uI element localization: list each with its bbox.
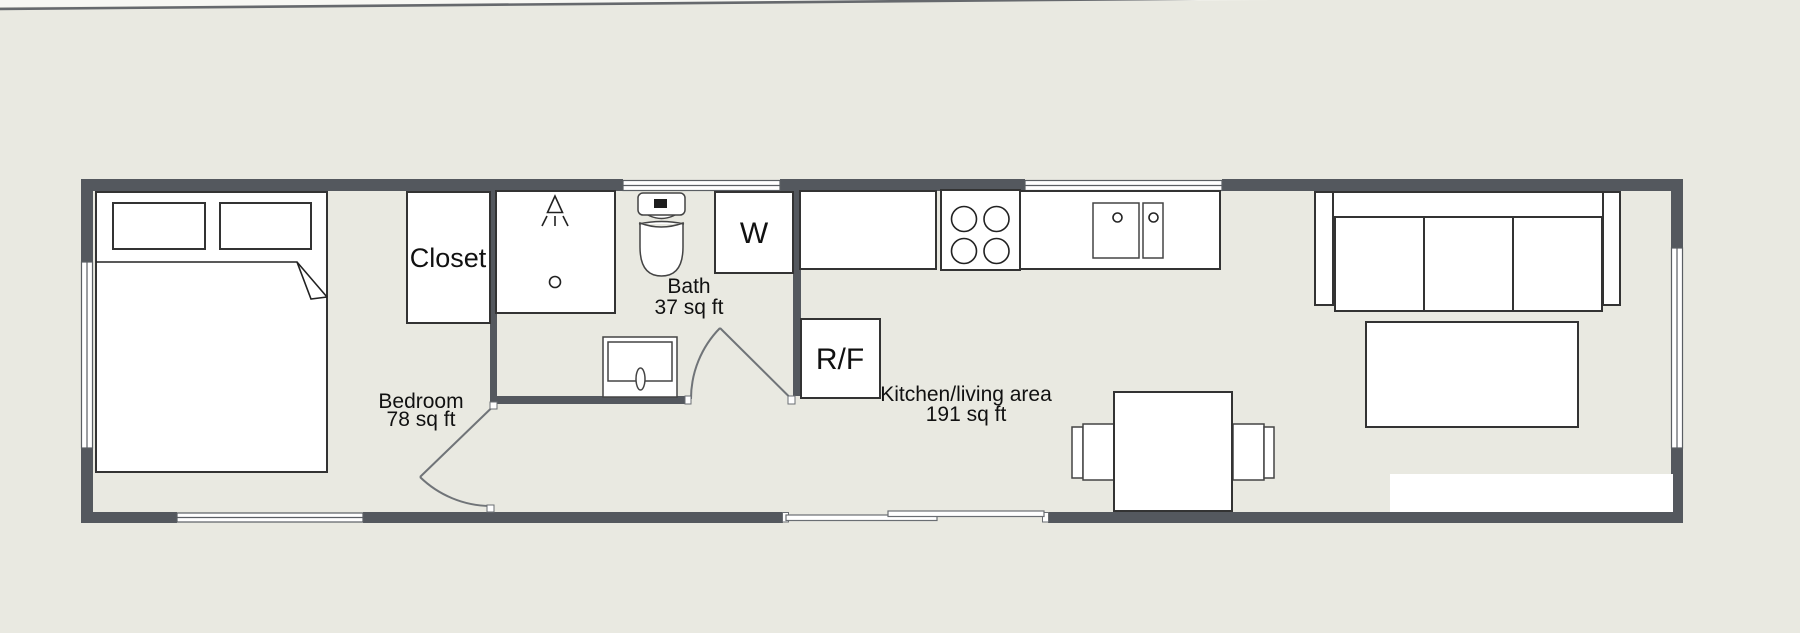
bedroom-door-jamb-bottom bbox=[487, 505, 494, 512]
shower-stall bbox=[496, 191, 615, 313]
sofa-armrest-left bbox=[1315, 192, 1333, 305]
toilet-bowl bbox=[640, 223, 683, 276]
kitchen-living-area-label: 191 sq ft bbox=[926, 403, 1007, 426]
toilet bbox=[638, 193, 685, 276]
sofa bbox=[1315, 192, 1620, 311]
bed-pillow-left bbox=[113, 203, 205, 249]
chair-right-back bbox=[1264, 427, 1274, 478]
vanity-faucet-handle bbox=[636, 368, 645, 390]
wall-bottom-middle-segment bbox=[363, 512, 783, 523]
floor-mat bbox=[1390, 474, 1673, 512]
wall-top-left-segment bbox=[83, 179, 623, 191]
bathroom-door-jamb-left bbox=[685, 396, 691, 404]
refrigerator-label: R/F bbox=[816, 343, 864, 376]
washer-label: W bbox=[740, 217, 769, 250]
living-right-window bbox=[1672, 248, 1683, 448]
wall-bottom-left-segment bbox=[83, 512, 177, 523]
bed bbox=[96, 192, 327, 472]
wall-right-upper-segment bbox=[1671, 179, 1683, 248]
sofa-armrest-right bbox=[1603, 192, 1620, 305]
bed-pillow-right bbox=[220, 203, 311, 249]
stove bbox=[941, 190, 1020, 270]
bedroom-bottom-window bbox=[177, 513, 363, 522]
bedroom-door-jamb-top bbox=[490, 402, 497, 409]
chair-left-back bbox=[1072, 427, 1083, 478]
wall-top-right-segment bbox=[1222, 179, 1683, 191]
sofa-back bbox=[1333, 192, 1603, 217]
dining-table bbox=[1114, 392, 1232, 511]
closet-label: Closet bbox=[410, 243, 487, 273]
wall-left-upper-segment bbox=[81, 179, 93, 262]
kitchen-sink-counter bbox=[1020, 191, 1220, 269]
bath-area-label: 37 sq ft bbox=[655, 296, 724, 319]
sofa-seat bbox=[1335, 217, 1602, 311]
chair-left-seat bbox=[1083, 424, 1114, 480]
wall-bottom-right-segment bbox=[1048, 512, 1683, 523]
dining-chair-left bbox=[1072, 424, 1114, 480]
sink-basin-small bbox=[1143, 203, 1163, 258]
kitchen-top-window bbox=[1025, 181, 1222, 191]
bathroom-vanity-sink bbox=[603, 337, 677, 397]
coffee-table bbox=[1366, 322, 1578, 427]
sliding-door-panel-right bbox=[888, 511, 1044, 517]
kitchen-counter-left bbox=[800, 191, 936, 269]
shower bbox=[496, 191, 615, 313]
chair-right-seat bbox=[1233, 424, 1264, 480]
bath-name-label: Bath bbox=[667, 275, 710, 298]
dining-chair-right bbox=[1233, 424, 1274, 480]
floor-plan: Closet W R/F Bedroom 78 sq ft Bath 37 sq… bbox=[0, 0, 1800, 633]
bedroom-area-label: 78 sq ft bbox=[387, 408, 456, 431]
wall-left-lower-segment bbox=[81, 448, 93, 523]
sink-basin-large bbox=[1093, 203, 1139, 258]
bathroom-door-jamb-right bbox=[788, 396, 795, 404]
floor-plan-canvas: Closet W R/F Bedroom 78 sq ft Bath 37 sq… bbox=[0, 0, 1800, 633]
bedroom-left-window bbox=[82, 262, 93, 448]
bath-top-window bbox=[623, 181, 780, 191]
toilet-flush-button bbox=[654, 199, 667, 208]
